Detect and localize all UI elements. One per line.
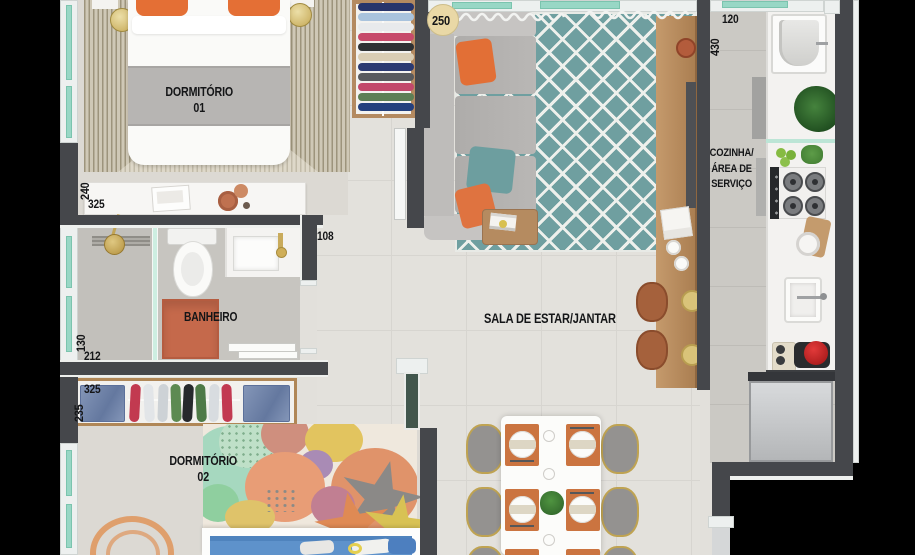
fridge xyxy=(749,381,833,462)
nightstand xyxy=(92,0,118,9)
decor-terracotta xyxy=(676,38,696,58)
closet-clothes xyxy=(157,384,168,422)
door-leaf-green xyxy=(404,372,420,430)
closet-clothes xyxy=(358,53,414,61)
room-name: DORMITÓRIO xyxy=(154,453,252,469)
room-label-dormitorio2: DORMITÓRIO 02 xyxy=(154,453,252,485)
door-jamb xyxy=(300,348,317,354)
glass-cup xyxy=(543,430,555,442)
cutlery-icon xyxy=(510,460,534,462)
centerpiece-plant-icon xyxy=(540,491,564,515)
stove-knobs xyxy=(770,167,779,219)
plate xyxy=(569,496,596,523)
dining-chair xyxy=(601,487,639,537)
glass-cup xyxy=(543,534,555,546)
room-name: DORMITÓRIO xyxy=(150,84,248,100)
burner-icon xyxy=(805,196,825,216)
shower-glass xyxy=(153,228,157,360)
window-glass xyxy=(452,2,512,9)
tv-panel xyxy=(686,82,696,208)
kitchen-sink-basin xyxy=(790,283,816,317)
room-name-line: ÁREA DE xyxy=(701,162,762,178)
dim-cozinha-width: 120 xyxy=(722,12,739,26)
pillow-blue xyxy=(388,538,416,554)
pillow-orange xyxy=(455,38,497,87)
pillow-orange xyxy=(136,0,188,16)
wall-outer-trim xyxy=(853,0,859,463)
card-decor xyxy=(660,206,693,240)
bowl-white xyxy=(674,256,689,271)
room-number: 02 xyxy=(154,469,252,485)
dim-cozinha-depth: 430 xyxy=(708,39,722,56)
placemat xyxy=(505,549,539,555)
bathroom-door-leaf xyxy=(238,351,298,359)
window-glass xyxy=(66,296,72,352)
desk-dormitorio1 xyxy=(84,182,306,215)
vanity-basin xyxy=(233,236,279,271)
door-jamb xyxy=(300,280,317,286)
wall xyxy=(697,0,710,390)
laptop-screen xyxy=(157,190,184,204)
wall xyxy=(407,128,424,228)
limes xyxy=(776,148,786,158)
cutlery-icon xyxy=(570,492,594,494)
cutlery-icon xyxy=(510,525,534,527)
floorplan-canvas: DORMITÓRIO 01 240 325 108 BANHEIRO 130 2… xyxy=(0,0,915,555)
room-label-sala: SALA DE ESTAR/JANTAR xyxy=(484,311,616,326)
plate xyxy=(509,496,536,523)
plate xyxy=(509,431,536,458)
plate-terracotta-small xyxy=(234,184,248,198)
placemat xyxy=(566,549,600,555)
pillow-orange xyxy=(228,0,280,16)
plant-icon xyxy=(794,86,840,132)
cutlery-icon xyxy=(570,427,594,429)
small-dish xyxy=(243,202,250,209)
room-number: 01 xyxy=(150,100,248,116)
wall xyxy=(712,462,853,480)
bar-stool xyxy=(636,282,668,322)
wall xyxy=(420,428,437,555)
faucet-icon xyxy=(816,42,828,45)
cup xyxy=(776,345,785,354)
closet-clothes xyxy=(358,103,414,111)
closet-clothes xyxy=(170,384,181,422)
closet-clothes xyxy=(358,93,414,101)
closet-clothes xyxy=(358,13,414,21)
faucet-icon xyxy=(276,247,287,258)
closet-clothes xyxy=(358,73,414,81)
burner-icon xyxy=(783,196,803,216)
bowl-white xyxy=(666,240,681,255)
laundry-tub-basin xyxy=(779,20,819,66)
window-glass xyxy=(66,86,72,138)
glass-cup xyxy=(543,468,555,480)
closet-clothes xyxy=(358,33,414,41)
bath-mat xyxy=(162,299,219,359)
sofa-cushion xyxy=(455,96,536,154)
dim-hall-width: 108 xyxy=(317,229,334,243)
coffee-machine-red xyxy=(804,341,828,365)
room-name-line: SERVIÇO xyxy=(701,177,762,193)
pillow-yellow-ring xyxy=(348,543,362,554)
closet-clothes xyxy=(358,43,414,51)
window-frame xyxy=(824,0,840,14)
shower-head-icon xyxy=(104,234,125,255)
dining-chair xyxy=(466,487,504,537)
bowl-white xyxy=(796,232,820,256)
room-label-dormitorio1: DORMITÓRIO 01 xyxy=(150,84,248,116)
dim-sala-badge: 250 xyxy=(427,4,459,36)
burner-icon xyxy=(783,172,803,192)
dim-sala-width: 250 xyxy=(432,13,450,28)
wall xyxy=(712,462,730,518)
glass-shelf xyxy=(766,139,838,143)
closet-clothes xyxy=(358,63,414,71)
dim-closet2-width: 325 xyxy=(84,382,101,396)
room-label-banheiro: BANHEIRO xyxy=(184,310,237,324)
window-glass xyxy=(66,504,72,548)
bed-sheet-fold xyxy=(132,16,286,34)
window-glass xyxy=(66,450,72,496)
plate xyxy=(569,431,596,458)
closet-clothes xyxy=(182,384,194,422)
room-name-line: COZINHA/ xyxy=(701,146,762,162)
window-glass xyxy=(66,5,72,80)
dim-closet2-depth: 235 xyxy=(72,405,86,422)
magazine-accent xyxy=(499,220,507,228)
dim-dorm1-width: 325 xyxy=(88,197,105,211)
closet-clothes xyxy=(195,384,207,422)
wall xyxy=(835,0,853,463)
closet-clothes xyxy=(208,384,219,422)
closet-clothes xyxy=(358,83,414,91)
closet-clothes xyxy=(143,384,155,422)
dining-chair xyxy=(601,424,639,474)
window-glass xyxy=(66,236,72,288)
pillar xyxy=(712,528,730,555)
room-label-cozinha: COZINHA/ ÁREA DE SERVIÇO xyxy=(701,146,762,193)
faucet-icon xyxy=(820,293,827,300)
closet-clothes xyxy=(129,384,141,422)
fridge-top xyxy=(748,372,836,381)
door-jamb xyxy=(708,516,734,528)
herb-pot xyxy=(801,145,823,164)
bar-stool xyxy=(636,330,668,370)
wall xyxy=(300,215,317,283)
curtain-icon xyxy=(584,8,690,20)
toilet-seat-inner xyxy=(181,252,204,286)
storage-box-blue xyxy=(243,385,290,422)
dim-banheiro-width: 212 xyxy=(84,349,101,363)
closet-clothes xyxy=(358,3,414,11)
burner-icon xyxy=(805,172,825,192)
wall xyxy=(60,215,323,228)
door-leaf-open xyxy=(394,128,406,220)
lamp-icon xyxy=(288,3,312,27)
closet-clothes xyxy=(358,23,414,31)
closet-clothes xyxy=(221,384,232,422)
window-glass xyxy=(722,1,788,8)
cup xyxy=(776,356,785,365)
pillow-white xyxy=(300,540,335,555)
dining-chair xyxy=(466,424,504,474)
